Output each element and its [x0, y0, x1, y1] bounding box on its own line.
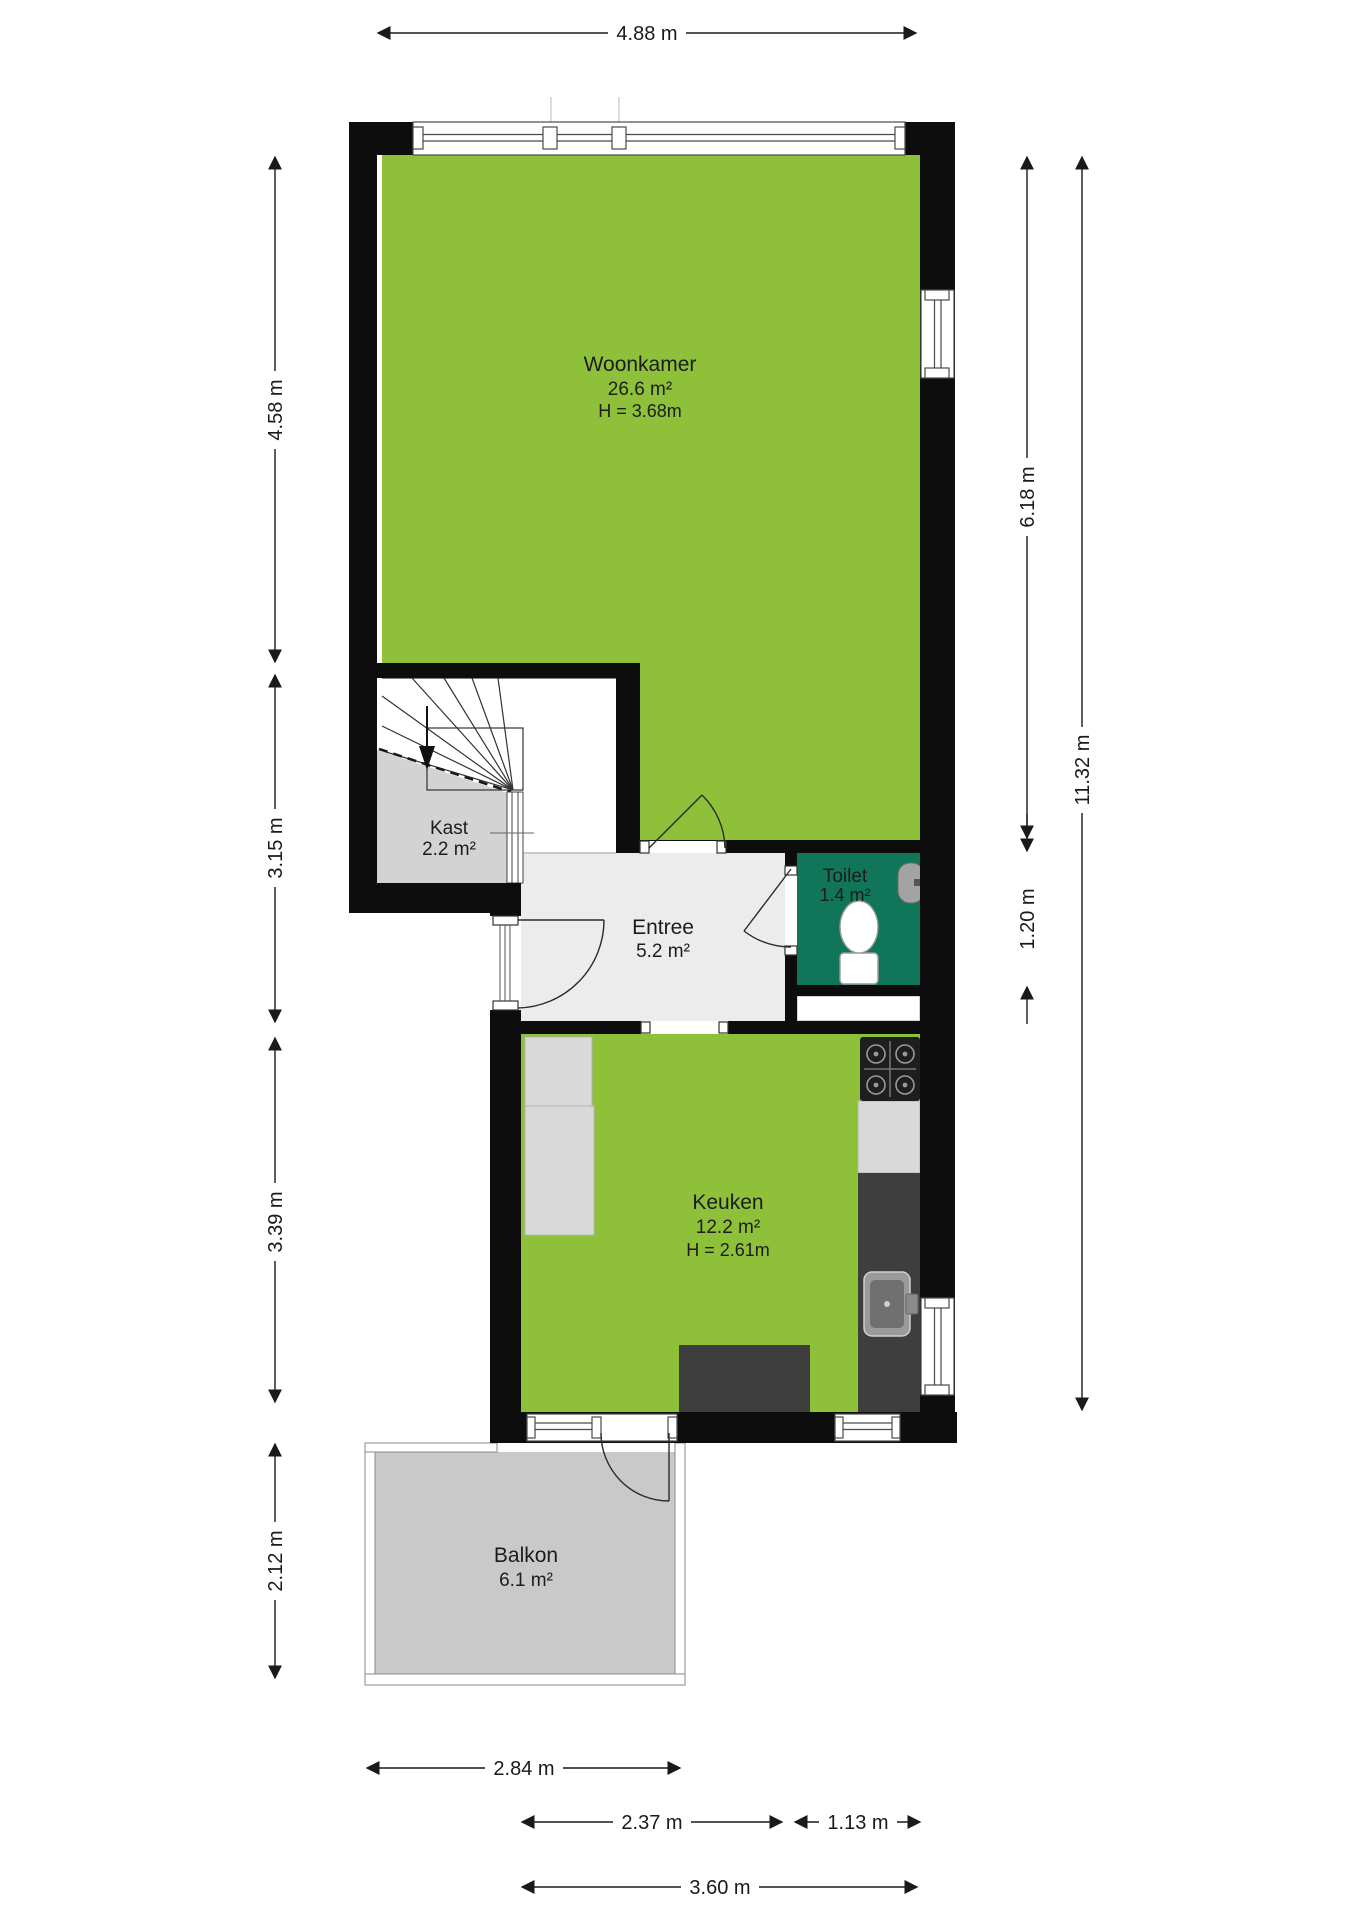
dimension-left-1: 4.58 m [265, 379, 287, 440]
dimension-bottom-3: 1.13 m [827, 1812, 888, 1834]
keuken-label: Keuken [692, 1191, 763, 1214]
balkon-area: 6.1 m² [499, 1570, 553, 1591]
dimension-right-3: 11.32 m [1072, 735, 1094, 806]
toilet-label: Toilet [823, 866, 868, 887]
toilet-area: 1.4 m² [819, 885, 870, 905]
dimension-left-4: 2.12 m [265, 1530, 287, 1591]
dimension-left-3: 3.39 m [265, 1191, 287, 1252]
keuken-height: H = 2.61m [686, 1240, 770, 1260]
dimension-bottom-2: 2.37 m [621, 1812, 682, 1834]
window-right-keuken [921, 1298, 954, 1395]
room-floors [377, 150, 920, 1412]
kitchen-island [679, 1345, 810, 1412]
balkon-railing-left [365, 1443, 375, 1685]
balkon-label: Balkon [494, 1544, 558, 1567]
window-right-woonkamer [921, 290, 954, 378]
opening-keuken [641, 1021, 728, 1034]
dimension-right-1: 6.18 m [1017, 466, 1039, 527]
dimension-right-2: 1.20 m [1017, 888, 1039, 949]
kitchen-sink-icon [864, 1272, 918, 1336]
dimension-bottom-1: 2.84 m [493, 1758, 554, 1780]
floor-plan: 4.88 m 4.58 m 3.15 m 3.39 m 2.12 m 6.18 … [0, 0, 1358, 1920]
kitchen-cabinet-lower [525, 1106, 594, 1235]
dimension-left-2: 3.15 m [265, 817, 287, 878]
woonkamer-area: 26.6 m² [608, 379, 672, 400]
kast-area: 2.2 m² [422, 839, 476, 860]
kitchen-cabinet-upper [525, 1037, 592, 1106]
dimension-top-width: 4.88 m [616, 23, 677, 45]
stair-railing [507, 792, 523, 883]
toilet-bowl [840, 901, 878, 953]
woonkamer-label: Woonkamer [584, 353, 697, 376]
woonkamer-height: H = 3.68m [598, 401, 682, 421]
window-bottom-keuken [835, 1414, 900, 1441]
balkon-railing-bottom [365, 1674, 685, 1685]
stove-icon [860, 1037, 920, 1101]
counter-light [858, 1101, 920, 1173]
keuken-area: 12.2 m² [696, 1217, 760, 1238]
dimension-bottom-4: 3.60 m [689, 1877, 750, 1899]
entree-area: 5.2 m² [636, 941, 690, 962]
window-balkon-door-band [527, 1414, 677, 1441]
balkon-railing-right [675, 1443, 685, 1685]
toilet-tank [840, 953, 878, 984]
kast-label: Kast [430, 818, 469, 839]
entree-label: Entree [632, 916, 694, 939]
balkon-railing-top-left [365, 1443, 497, 1452]
shaft-niche [797, 996, 920, 1021]
window-top [413, 122, 905, 155]
